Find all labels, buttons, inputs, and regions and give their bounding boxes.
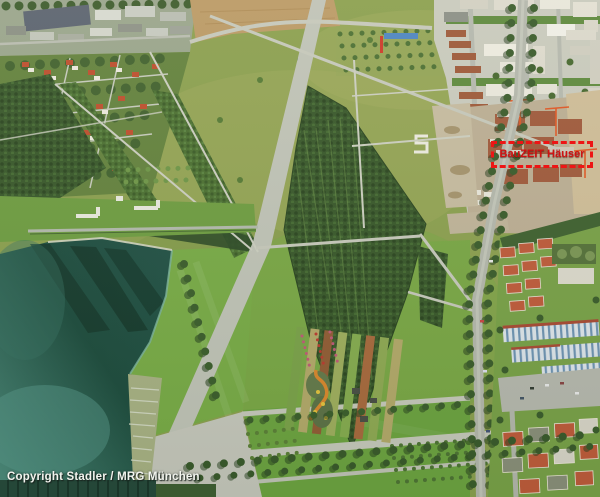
bauzeit-haeuser-marker: BauZEIT Häuser [491, 141, 593, 168]
photo-vignette [0, 0, 600, 497]
bauzeit-haeuser-label: BauZEIT Häuser [500, 149, 585, 160]
aerial-photo: BauZEIT Häuser Copyright Stadler / MRG M… [0, 0, 600, 497]
aerial-photo-svg [0, 0, 600, 497]
copyright-text: Copyright Stadler / MRG München [7, 471, 200, 483]
